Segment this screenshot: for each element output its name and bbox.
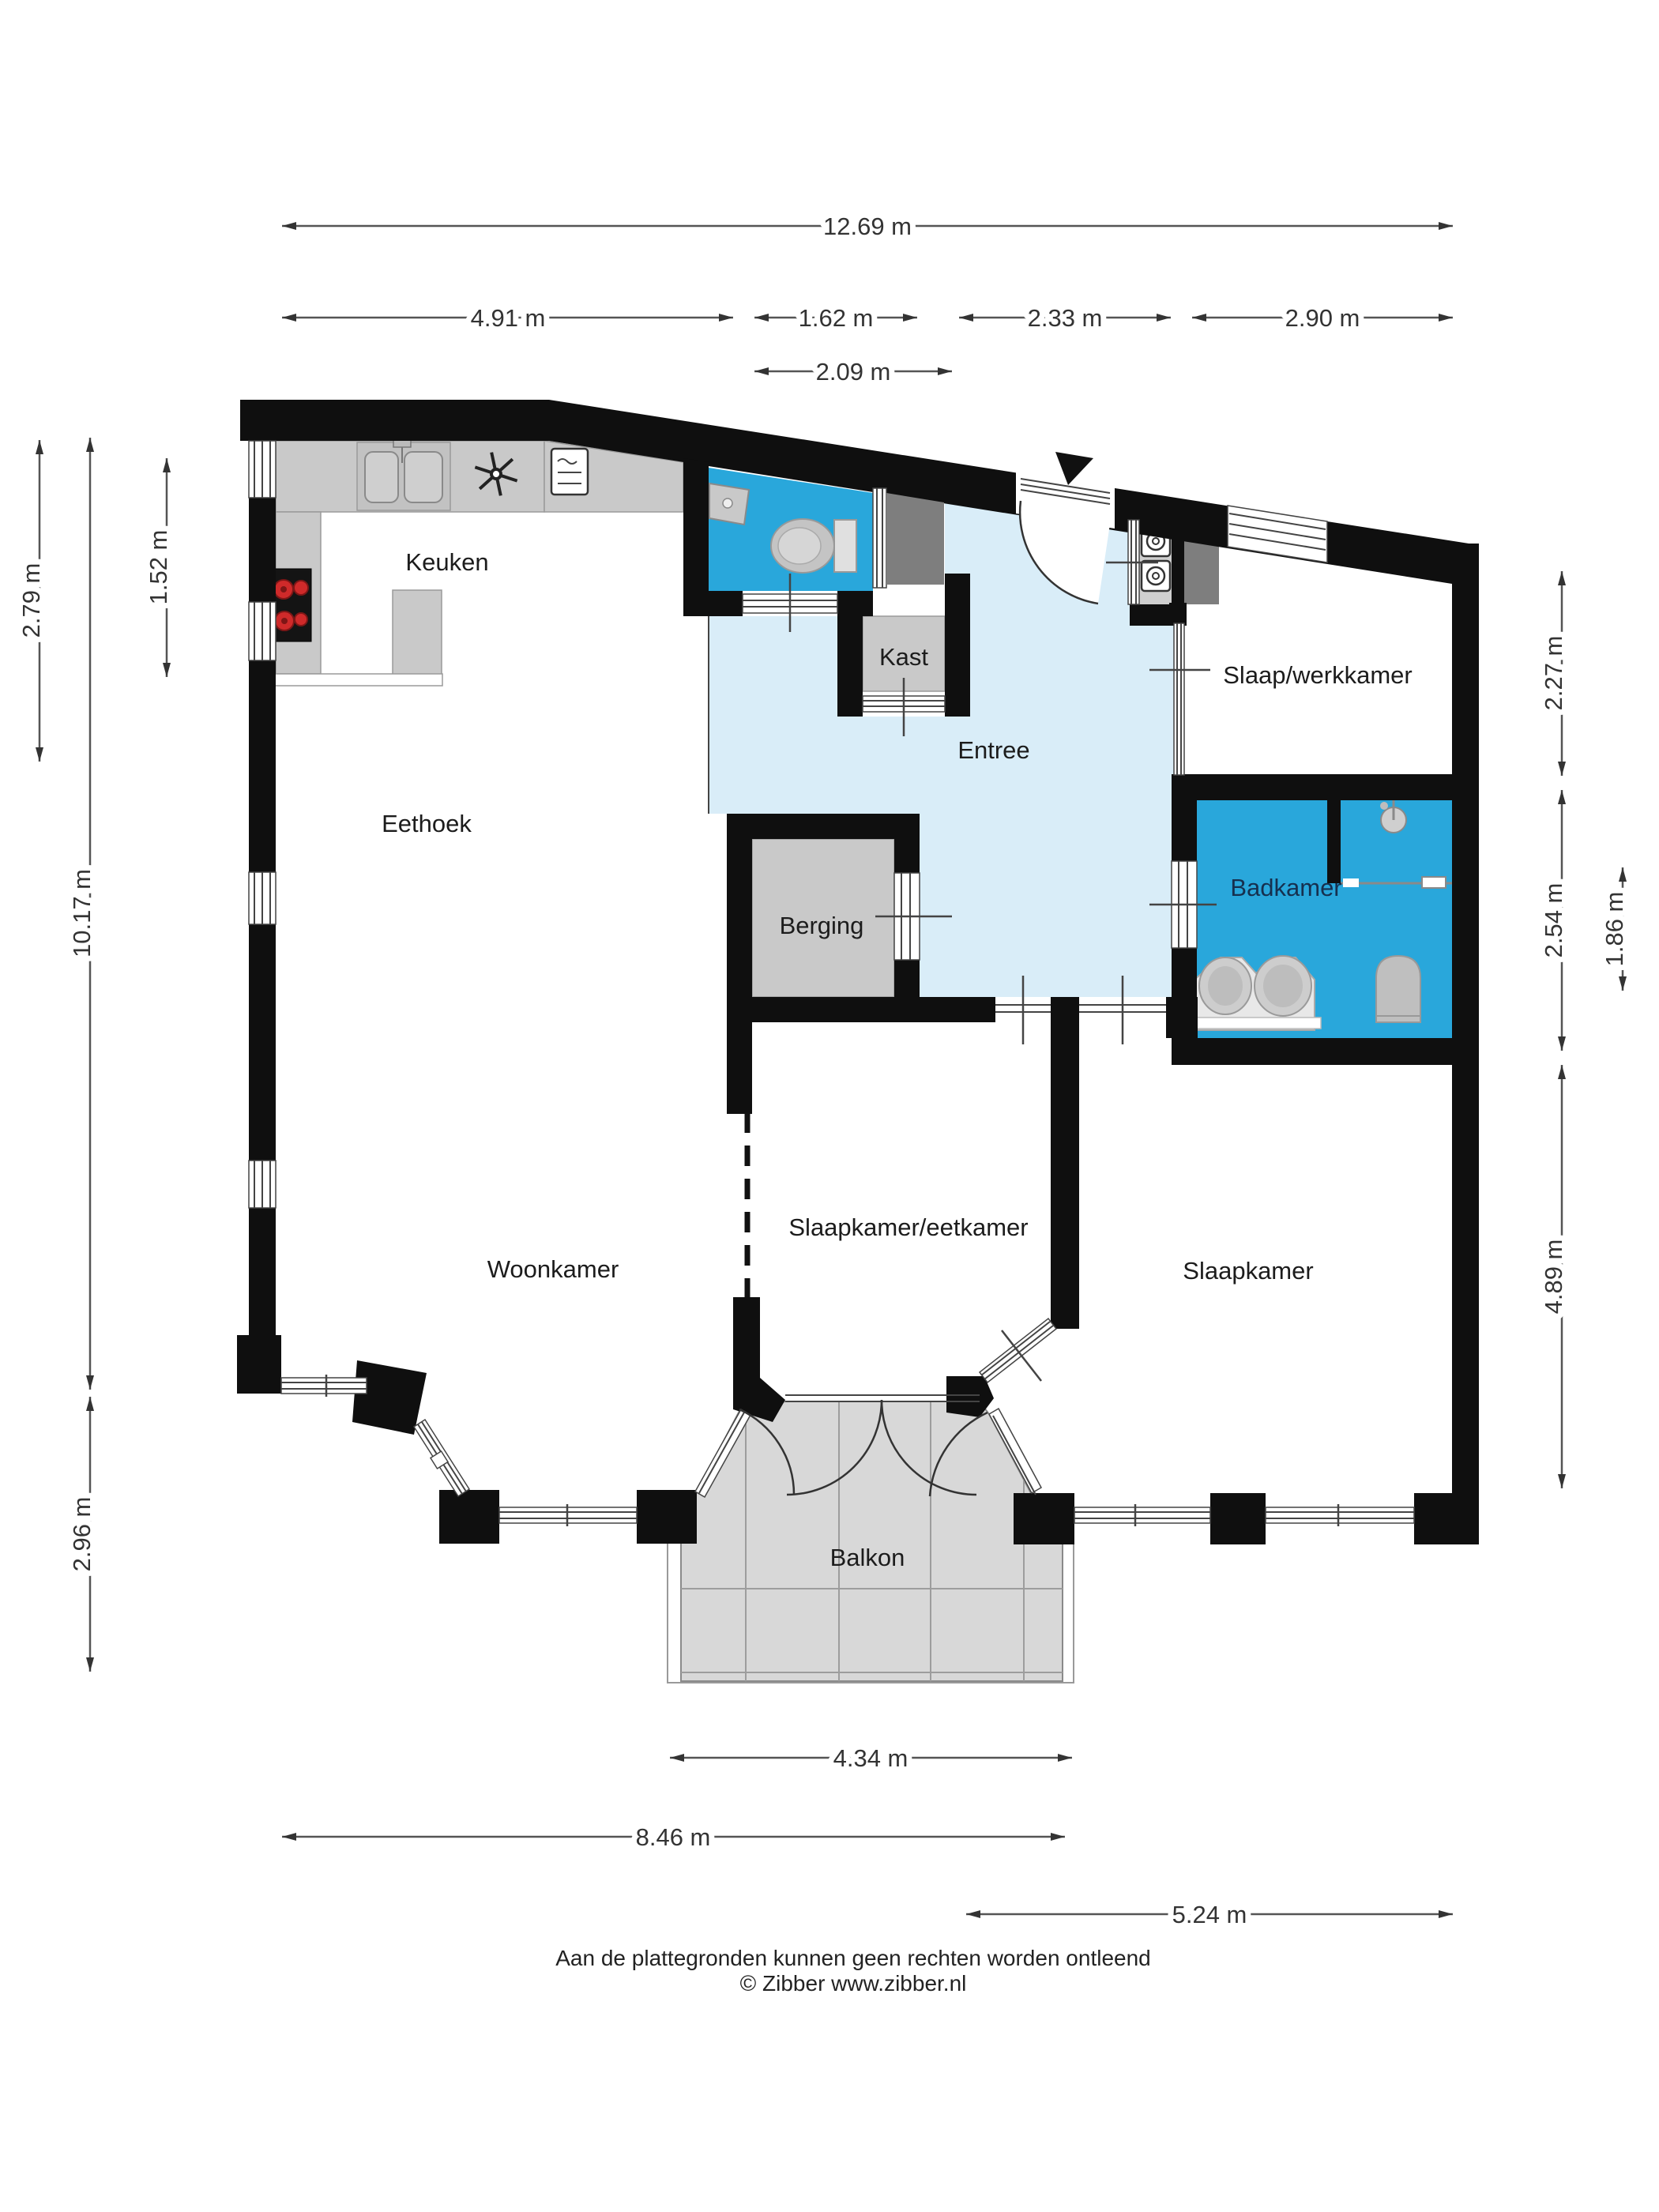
dim-entree-width: 2.33 m — [1028, 304, 1103, 332]
wall-corner-sw — [237, 1335, 281, 1394]
wall-top — [240, 400, 549, 441]
dim-balkon-width: 4.34 m — [833, 1744, 908, 1772]
label-entree: Entree — [957, 736, 1029, 764]
dim-kast-width: 2.09 m — [816, 358, 891, 386]
oven-icon — [551, 449, 588, 495]
wall-berging-north — [727, 814, 920, 839]
dim-left-total: 10.17 m — [68, 869, 96, 957]
label-kast: Kast — [879, 643, 928, 671]
wall-badkamer-west-a — [1172, 800, 1197, 861]
corner-basin-icon — [709, 483, 749, 525]
floorplan-page: Keuken Eethoek Woonkamer Entree Kast Ber… — [0, 0, 1659, 2212]
label-balkon: Balkon — [830, 1544, 905, 1571]
window-south-2 — [1266, 1504, 1414, 1526]
floorplan-svg: Keuken Eethoek Woonkamer Entree Kast Ber… — [0, 0, 1659, 2212]
window-south-1 — [1074, 1504, 1210, 1526]
wall-berging-south — [727, 997, 945, 1022]
window-left-3 — [249, 872, 276, 924]
shower-glass-gap — [1343, 878, 1359, 887]
label-slaapkamer: Slaapkamer — [1183, 1257, 1313, 1285]
bay-post-1 — [352, 1360, 427, 1435]
south-post-3 — [1414, 1493, 1479, 1544]
meter-cabinet — [886, 493, 944, 585]
label-eethoek: Eethoek — [382, 810, 472, 837]
kitchen-sink-icon — [357, 439, 450, 510]
wall-wc-west — [683, 458, 709, 591]
kitchen-island — [393, 590, 442, 675]
wall-badkamer-west-b — [1172, 948, 1197, 1038]
dim-right-top: 2.27 m — [1540, 636, 1567, 711]
dim-toilet-width: 1.62 m — [799, 304, 874, 332]
wall-wc-south-a — [683, 591, 743, 616]
wall-badkamer-south — [1172, 1038, 1479, 1065]
dim-badkamer-inner: 1.86 m — [1601, 892, 1628, 967]
footer-disclaimer: Aan de plattegronden kunnen geen rechten… — [555, 1946, 1150, 1970]
stove-icon — [272, 569, 311, 641]
wall-closet-divider — [1172, 526, 1184, 604]
window-left-1 — [249, 441, 276, 498]
dryer-icon — [1142, 561, 1170, 591]
shower-door-handle — [1422, 877, 1446, 888]
wall-center-post — [733, 1297, 760, 1382]
south-post-1 — [1014, 1493, 1074, 1544]
kitchen-kickstrip — [272, 674, 442, 686]
window-slant — [1228, 506, 1327, 562]
wc-pocket-band — [873, 488, 886, 588]
label-berging: Berging — [780, 912, 864, 939]
dim-total-width: 12.69 m — [823, 213, 912, 240]
bay-window-3 — [499, 1504, 637, 1526]
bath-threshold — [1189, 1018, 1321, 1029]
label-badkamer: Badkamer — [1230, 874, 1341, 901]
bay-post-2 — [439, 1490, 499, 1544]
label-slaap-werkkamer: Slaap/werkkamer — [1223, 661, 1412, 689]
label-keuken: Keuken — [405, 548, 488, 576]
dim-badkamer-height: 2.54 m — [1540, 883, 1567, 958]
dim-kitchen-width: 4.91 m — [471, 304, 546, 332]
dim-werkkamer-width: 2.90 m — [1285, 304, 1360, 332]
wc-toilet-icon — [771, 519, 856, 573]
bay-window-2 — [414, 1420, 469, 1496]
dim-left-bottom: 2.96 m — [68, 1497, 96, 1572]
window-left-4 — [249, 1161, 276, 1208]
dim-left-top: 2.79 m — [17, 563, 45, 638]
wall-berging-east-a — [894, 839, 920, 873]
south-post-2 — [1210, 1493, 1266, 1544]
dim-bottom-width: 8.46 m — [636, 1823, 711, 1851]
label-slaapkamer-eetkamer: Slaapkamer/eetkamer — [788, 1213, 1028, 1241]
footer: Aan de plattegronden kunnen geen rechten… — [555, 1946, 1150, 1996]
wall-badkamer-north — [1172, 774, 1479, 800]
wall-shower-stub — [1327, 800, 1341, 883]
window-left-2 — [249, 602, 276, 660]
wall-entree-south-a — [945, 997, 995, 1022]
bathroom-toilet-icon — [1376, 956, 1420, 1022]
dim-kitchen-window: 1.52 m — [145, 530, 172, 605]
door-between-bedrooms — [980, 1319, 1056, 1382]
footer-credit: © Zibber www.zibber.nl — [740, 1971, 967, 1996]
label-woonkamer: Woonkamer — [487, 1255, 619, 1283]
wall-bedroom-divider — [1051, 997, 1079, 1329]
bay-post-3 — [637, 1490, 697, 1544]
dim-slaapkamer-height: 4.89 m — [1540, 1240, 1567, 1315]
wall-berging-west — [727, 814, 752, 1114]
dim-bottom-right: 5.24 m — [1172, 1901, 1247, 1928]
bay-window-1 — [281, 1375, 367, 1397]
